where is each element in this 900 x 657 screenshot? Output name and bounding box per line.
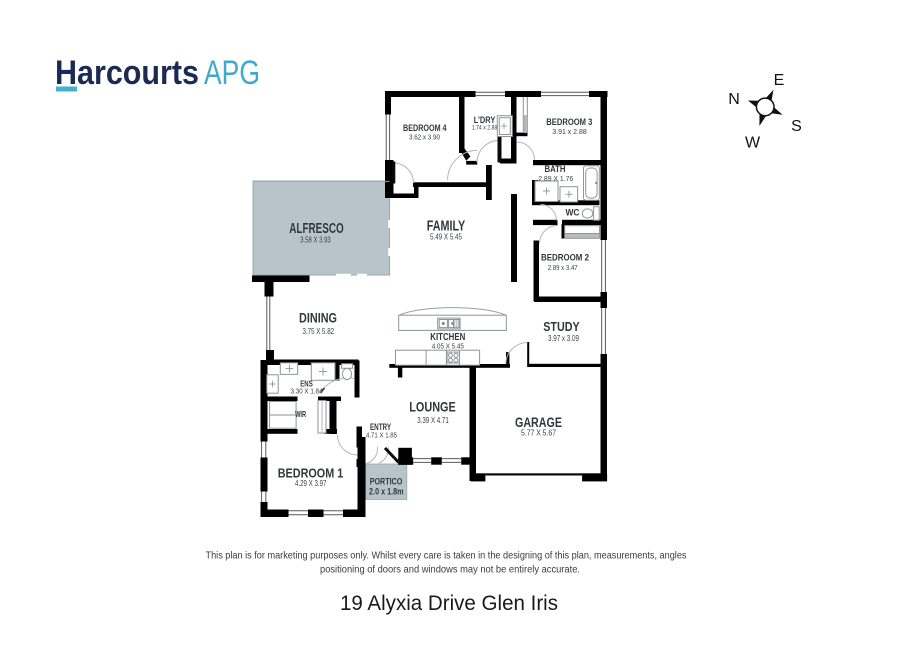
svg-text:E: E xyxy=(774,72,785,89)
svg-text:3.58 X 3.93: 3.58 X 3.93 xyxy=(300,236,331,245)
svg-text:3.97 x 3.09: 3.97 x 3.09 xyxy=(548,334,579,343)
svg-text:STUDY: STUDY xyxy=(543,320,580,334)
svg-text:N: N xyxy=(728,91,740,108)
svg-text:S: S xyxy=(791,118,802,135)
svg-text:2.89 x 3.47: 2.89 x 3.47 xyxy=(548,263,578,272)
svg-text:4.71 X 1.85: 4.71 X 1.85 xyxy=(366,431,397,440)
svg-text:KITCHEN: KITCHEN xyxy=(430,331,465,343)
svg-text:This plan is for marketing pur: This plan is for marketing purposes only… xyxy=(206,551,687,562)
svg-text:1.74 x 2.88: 1.74 x 2.88 xyxy=(472,126,498,132)
svg-text:positioning of doors and windo: positioning of doors and windows may not… xyxy=(320,565,580,576)
svg-text:3.62 x 3.90: 3.62 x 3.90 xyxy=(409,133,440,142)
svg-text:APG: APG xyxy=(204,54,260,92)
svg-text:3.30 X 1.84: 3.30 X 1.84 xyxy=(291,387,323,396)
svg-text:3.91 x 2.88: 3.91 x 2.88 xyxy=(552,127,587,136)
svg-text:PORTICO: PORTICO xyxy=(370,477,403,487)
svg-text:W: W xyxy=(745,135,761,152)
svg-text:DINING: DINING xyxy=(299,311,337,326)
svg-text:4.05 X 5.45: 4.05 X 5.45 xyxy=(432,344,464,351)
svg-text:WIR: WIR xyxy=(295,409,306,419)
svg-text:2.89 X 1.76: 2.89 X 1.76 xyxy=(538,174,573,183)
svg-text:LOUNGE: LOUNGE xyxy=(409,400,456,415)
svg-text:3.39 X 4.71: 3.39 X 4.71 xyxy=(417,416,449,425)
svg-text:2.0 x 1.8m: 2.0 x 1.8m xyxy=(369,487,404,497)
svg-text:WC: WC xyxy=(566,208,580,219)
svg-text:BEDROOM 2: BEDROOM 2 xyxy=(541,253,589,264)
svg-text:3.75 X 5.82: 3.75 X 5.82 xyxy=(303,327,335,336)
svg-text:4.29 X 3.97: 4.29 X 3.97 xyxy=(295,479,327,488)
svg-text:19 Alyxia Drive Glen Iris: 19 Alyxia Drive Glen Iris xyxy=(340,592,558,615)
svg-text:Harcourts: Harcourts xyxy=(55,54,199,92)
svg-text:L’DRY: L’DRY xyxy=(474,115,496,125)
svg-text:5.77 X 5.67: 5.77 X 5.67 xyxy=(521,429,556,438)
svg-text:5.49 X 5.45: 5.49 X 5.45 xyxy=(430,233,462,242)
